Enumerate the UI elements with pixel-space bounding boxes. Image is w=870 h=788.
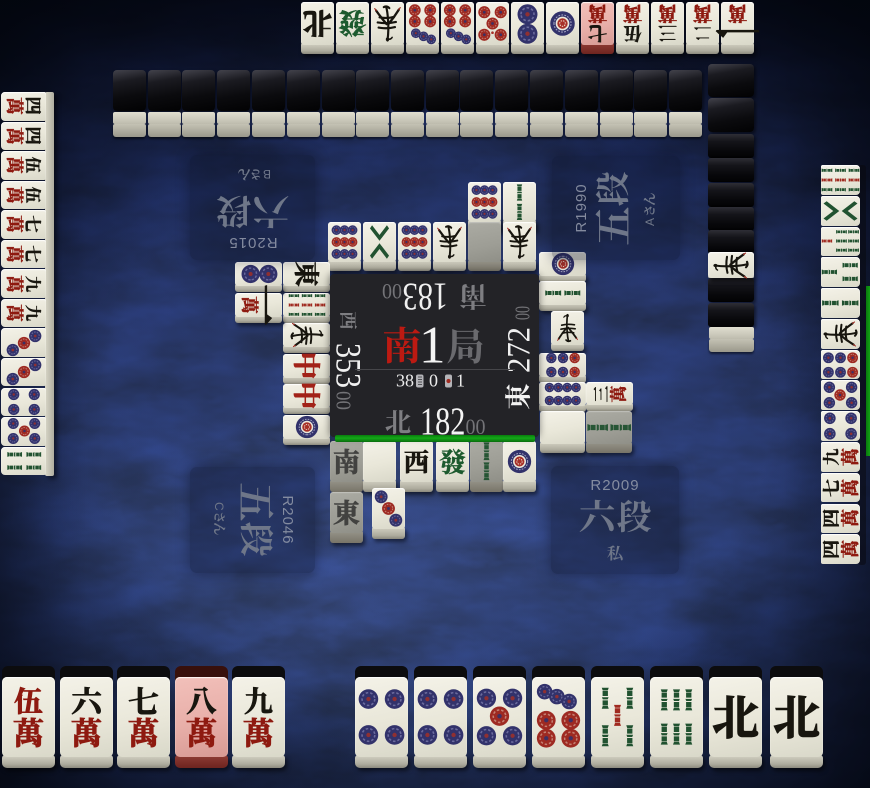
svg-text:B: B [262,167,270,181]
svg-text:00: 00 [511,306,535,320]
svg-text:183: 183 [403,275,448,318]
svg-text:00: 00 [332,391,356,410]
svg-text:182: 182 [420,400,465,443]
svg-text:A: A [643,218,657,226]
svg-text:353: 353 [329,343,369,388]
svg-text:1: 1 [419,317,446,375]
svg-text:C: C [212,502,226,511]
svg-text:0: 0 [429,371,438,391]
svg-text:1: 1 [456,371,465,391]
svg-text:00: 00 [382,279,402,304]
svg-text:272: 272 [502,327,538,373]
svg-text:38: 38 [396,371,414,391]
svg-text:00: 00 [466,414,486,439]
